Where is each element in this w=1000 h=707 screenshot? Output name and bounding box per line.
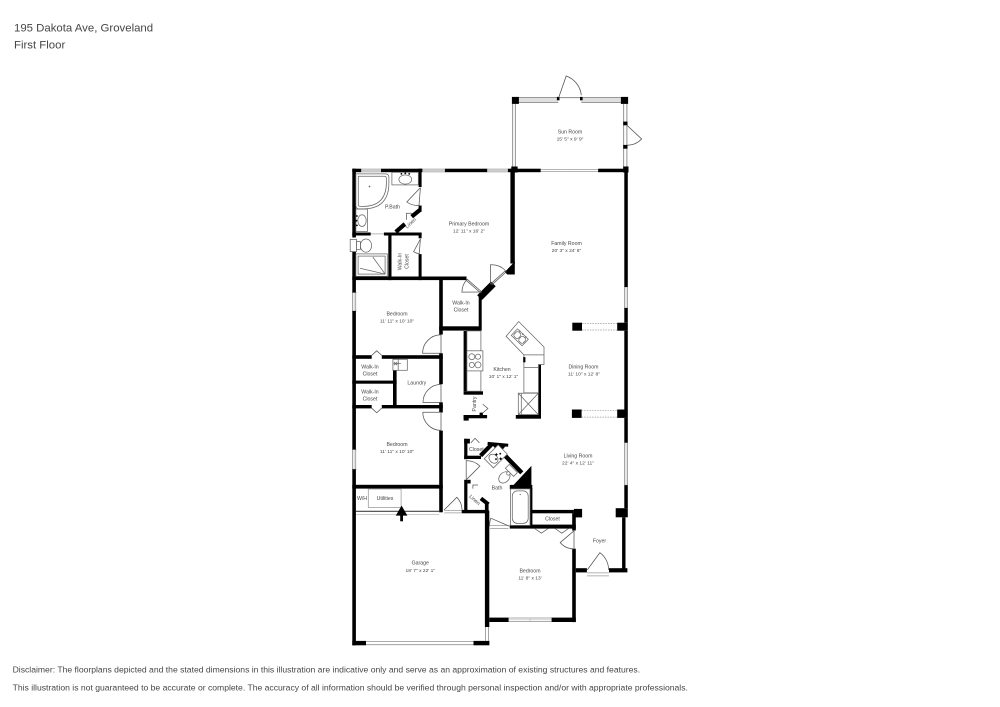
svg-text:11' 11" x 10' 10": 11' 11" x 10' 10": [380, 319, 415, 325]
svg-text:Garage: Garage: [412, 561, 429, 567]
svg-text:W/H: W/H: [357, 496, 367, 502]
svg-text:22' 4" x 12' 11": 22' 4" x 12' 11": [562, 461, 594, 467]
svg-text:15' 5" x 9' 9": 15' 5" x 9' 9": [557, 136, 584, 142]
svg-text:Bedroom: Bedroom: [386, 312, 407, 318]
svg-text:Bedroom: Bedroom: [519, 569, 540, 575]
svg-text:Bedroom: Bedroom: [386, 442, 407, 448]
svg-text:Utilities: Utilities: [377, 496, 394, 502]
svg-text:Kitchen: Kitchen: [493, 367, 510, 373]
svg-text:Walk-In: Walk-In: [361, 364, 379, 370]
svg-text:195 Dakota Ave, Groveland: 195 Dakota Ave, Groveland: [14, 23, 153, 35]
svg-text:Walk-In: Walk-In: [361, 390, 379, 396]
svg-text:Closet: Closet: [469, 447, 484, 453]
svg-text:20' 3" x 24' 6": 20' 3" x 24' 6": [552, 248, 582, 254]
svg-text:11' 11" x 10' 10": 11' 11" x 10' 10": [380, 449, 415, 455]
svg-text:Laundry: Laundry: [407, 381, 426, 387]
svg-text:11' 10" x 12' 8": 11' 10" x 12' 8": [568, 372, 600, 378]
svg-text:11' 8" x 13': 11' 8" x 13': [518, 576, 541, 582]
svg-text:10' 1" x 12' 1": 10' 1" x 12' 1": [489, 374, 519, 380]
svg-text:Sun Room: Sun Room: [558, 130, 583, 136]
svg-text:Closet: Closet: [454, 308, 469, 314]
svg-text:P.Bath: P.Bath: [385, 205, 400, 211]
svg-text:First Floor: First Floor: [14, 40, 65, 52]
svg-text:Bath: Bath: [492, 486, 503, 492]
svg-text:Closet: Closet: [545, 517, 560, 523]
svg-text:Living Room: Living Room: [564, 454, 593, 460]
svg-text:Foyer: Foyer: [593, 539, 607, 545]
svg-text:Disclaimer: The floorplans dep: Disclaimer: The floorplans depicted and …: [13, 665, 641, 675]
svg-text:Dining Room: Dining Room: [569, 365, 599, 371]
svg-text:Closet: Closet: [405, 254, 411, 269]
svg-text:Walk-In: Walk-In: [452, 301, 470, 307]
svg-text:Family Room: Family Room: [551, 241, 582, 247]
svg-text:This illustration is not guara: This illustration is not guaranteed to b…: [13, 683, 688, 693]
svg-text:18' 7" x 22' 1": 18' 7" x 22' 1": [406, 568, 436, 574]
svg-text:Closet: Closet: [363, 371, 378, 377]
svg-text:Walk-In: Walk-In: [398, 253, 404, 271]
svg-text:Primary Bedroom: Primary Bedroom: [449, 222, 489, 228]
svg-text:Closet: Closet: [363, 397, 378, 403]
svg-text:Pantry: Pantry: [472, 396, 478, 411]
svg-text:12' 11" x 16' 2": 12' 11" x 16' 2": [453, 229, 485, 235]
